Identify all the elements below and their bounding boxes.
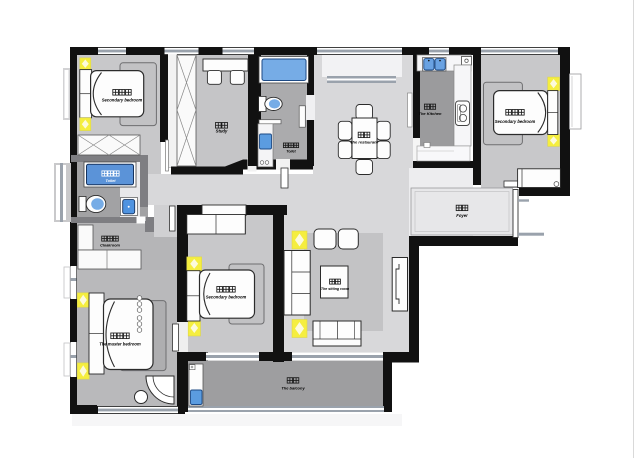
svg-text:Foyer: Foyer [456, 213, 468, 218]
svg-text:Toilet: Toilet [286, 150, 296, 154]
svg-text:Cloakroom: Cloakroom [100, 244, 120, 248]
svg-text:Secondary bedroom: Secondary bedroom [102, 98, 143, 103]
svg-text:The sitting room: The sitting room [321, 287, 350, 291]
svg-text:The balcony: The balcony [281, 386, 305, 391]
svg-text:Toilet: Toilet [106, 179, 117, 183]
svg-text:Study: Study [216, 129, 228, 134]
svg-text:The master bedroom: The master bedroom [99, 342, 141, 347]
svg-text:Secondary bedroom: Secondary bedroom [495, 119, 536, 124]
svg-text:Secondary bedroom: Secondary bedroom [206, 295, 247, 300]
svg-text:The Kitchen: The Kitchen [419, 111, 442, 116]
svg-text:The restaurant: The restaurant [350, 140, 378, 145]
